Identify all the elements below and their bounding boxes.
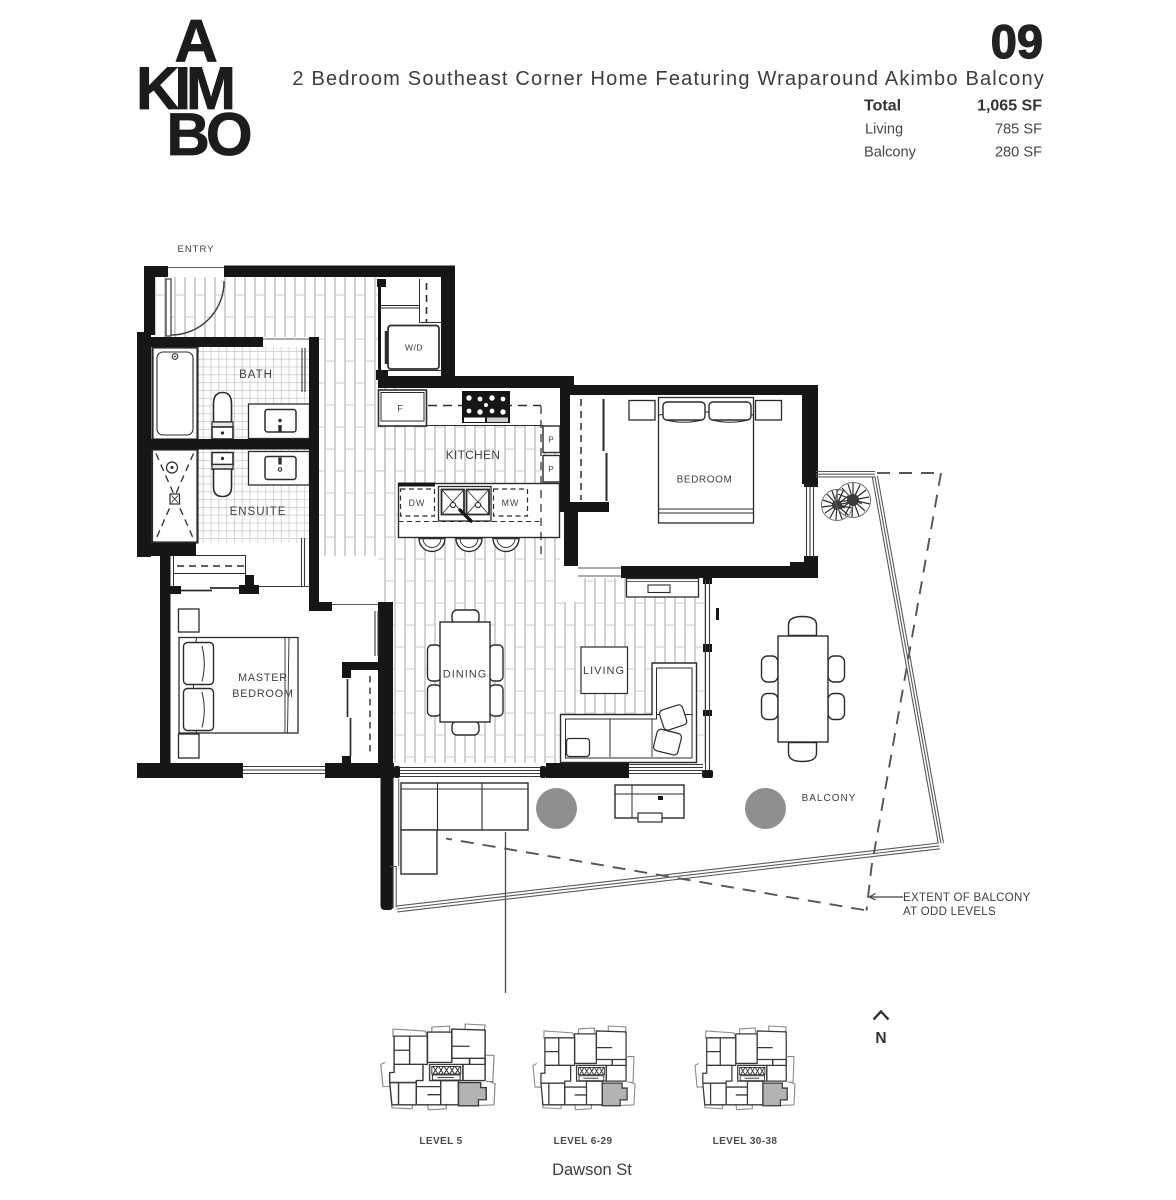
svg-text:280 SF: 280 SF: [995, 145, 1042, 161]
svg-text:Balcony: Balcony: [864, 145, 917, 161]
svg-text:P: P: [548, 436, 554, 445]
svg-text:BATH: BATH: [239, 369, 273, 381]
svg-text:AT ODD LEVELS: AT ODD LEVELS: [903, 906, 996, 918]
svg-text:LEVEL 6-29: LEVEL 6-29: [554, 1136, 613, 1147]
svg-text:ENTRY: ENTRY: [177, 244, 214, 255]
svg-text:BALCONY: BALCONY: [802, 793, 857, 804]
svg-text:Total: Total: [864, 98, 901, 115]
svg-text:BEDROOM: BEDROOM: [232, 688, 293, 700]
svg-text:ENSUITE: ENSUITE: [230, 506, 287, 518]
svg-text:785 SF: 785 SF: [995, 122, 1042, 138]
svg-text:N: N: [875, 1030, 886, 1047]
svg-text:EXTENT OF BALCONY: EXTENT OF BALCONY: [903, 892, 1031, 904]
svg-text:BEDROOM: BEDROOM: [677, 475, 733, 486]
svg-text:BO: BO: [167, 101, 253, 168]
svg-text:MASTER: MASTER: [238, 672, 288, 684]
svg-text:DW: DW: [409, 498, 426, 508]
svg-text:P: P: [548, 465, 554, 474]
svg-text:DINING: DINING: [443, 669, 488, 681]
svg-text:F: F: [397, 404, 404, 414]
svg-text:Dawson St: Dawson St: [552, 1161, 632, 1179]
svg-text:LIVING: LIVING: [583, 665, 625, 677]
svg-text:2 Bedroom Southeast Corner Hom: 2 Bedroom Southeast Corner Home Featurin…: [292, 68, 1045, 90]
svg-text:Living: Living: [865, 122, 903, 138]
svg-text:KITCHEN: KITCHEN: [446, 448, 501, 462]
svg-text:MW: MW: [502, 498, 520, 508]
svg-text:09: 09: [991, 15, 1043, 68]
svg-text:1,065 SF: 1,065 SF: [977, 98, 1042, 115]
svg-text:LEVEL 5: LEVEL 5: [419, 1136, 462, 1147]
svg-text:LEVEL 30-38: LEVEL 30-38: [713, 1136, 778, 1147]
svg-text:W/D: W/D: [405, 343, 423, 353]
